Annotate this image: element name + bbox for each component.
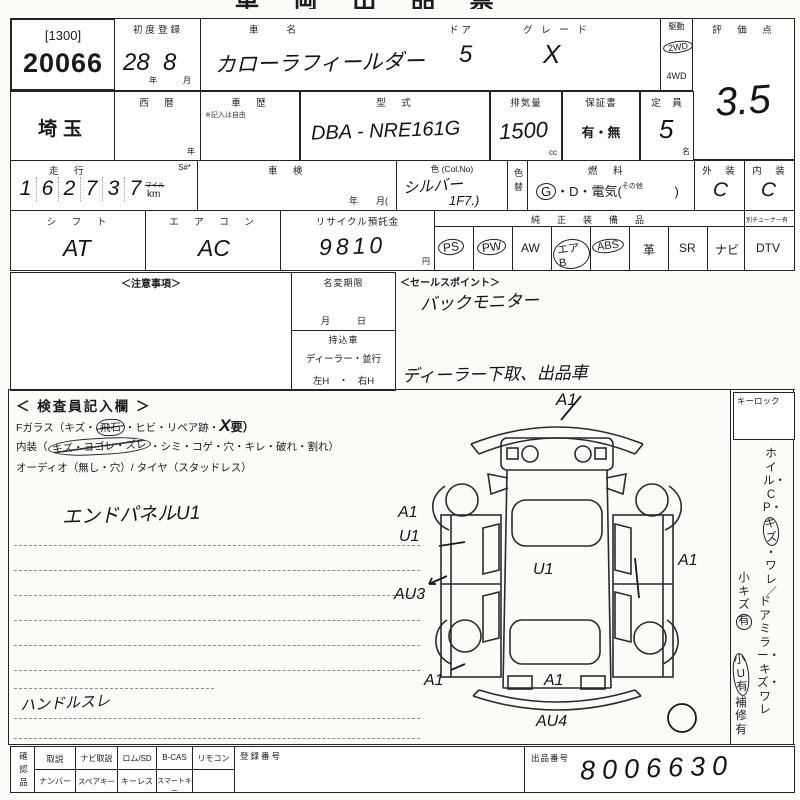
cell-smart-key: スマートキー: [156, 769, 193, 793]
wheel-small-scratch: 小キズ: [738, 572, 750, 611]
fglass-post: 要）: [231, 420, 255, 434]
warranty-options: 有・無: [563, 122, 639, 141]
car-name-value: カローラフィールダー: [215, 45, 425, 79]
right-border: [793, 389, 794, 745]
mirror-kou-circled: 小U有: [731, 652, 751, 696]
bring-in-cell: 持込車 ディーラー・並行 左H ・ 右H: [291, 330, 396, 391]
bcas-label: B-CAS: [157, 753, 192, 762]
cell-number-plate: ナンバー: [34, 769, 76, 793]
displacement-value: 1500: [498, 117, 548, 146]
bring-in-handle: 左H ・ 右H: [292, 373, 395, 387]
confirm-items-cell: 確認品: [10, 746, 35, 793]
seireki-unit: 年: [187, 146, 195, 157]
displacement-label: 排気量: [491, 95, 561, 109]
equip-cell-dtv: DTV: [744, 226, 795, 271]
mirror-repair-note: 補修有: [735, 697, 747, 736]
drive-type-cell: 駆動 2WD 4WD: [660, 18, 693, 91]
shareki-label: 車 歴: [201, 95, 299, 109]
fuel-close-paren: ): [674, 184, 678, 199]
cell-rom-sd: ロム/SD: [117, 746, 157, 770]
cell-navi-manual: ナビ取説: [75, 746, 118, 770]
inspection-cell: 車 検 年 月(: [197, 160, 397, 211]
tuner-note-cell: 別チューナー有: [744, 210, 795, 227]
year-unit: 年: [149, 75, 157, 86]
inspector-header: ＜ 検査員記入欄 ＞: [16, 395, 152, 415]
auction-sheet: { "title": {"clipped": "車 両 出 品 票"}, "lo…: [0, 0, 800, 800]
cell-blank: [192, 769, 235, 793]
wheel-small-scratch-column: 小キズ有: [736, 572, 752, 630]
equip-abs: ABS: [591, 237, 624, 255]
interior-value: C: [759, 178, 777, 203]
capacity-value: 5: [659, 114, 673, 145]
exterior-grade-cell: 外 装 C: [694, 160, 745, 211]
door-label: ドア: [449, 22, 474, 36]
shareki-note: ※記入は自由: [205, 110, 246, 120]
exterior-label: 外 装: [695, 163, 744, 177]
bring-in-label: 持込車: [292, 333, 395, 346]
mileage-unit-mile: マイル: [145, 179, 165, 189]
drive-label: 駆動: [661, 21, 692, 32]
mileage-label: 走 行: [49, 163, 87, 177]
ruled-line: [14, 570, 420, 571]
drive-4wd: 4WD: [661, 71, 692, 81]
equip-sr: SR: [679, 241, 696, 255]
interior-scribbled-items: キズ・ヨゴレ・ズレ: [47, 435, 150, 457]
wheel-kizu-circled: キズ: [762, 516, 781, 547]
equipment-header-label: 純 正 装 備 品: [435, 213, 744, 226]
equip-aw: AW: [521, 241, 540, 255]
drive-2wd-circle: 2WD: [662, 39, 693, 55]
interior-grade-cell: 内 装 C: [744, 160, 795, 211]
color-code: 1F7.): [449, 193, 479, 208]
ruled-line: [14, 645, 420, 646]
cell-keyless: キーレス: [117, 769, 157, 793]
interior-label: 内 装: [745, 163, 794, 177]
capacity-unit: 名: [682, 146, 690, 157]
notes-box: ＜注意事項＞: [10, 272, 292, 391]
inspection-unit: 年 月(: [349, 194, 388, 207]
aircon-value: AC: [198, 235, 230, 262]
door-value: 5: [459, 41, 472, 69]
keylock-label: キーロック: [737, 395, 780, 407]
fglass-line: Fガラス（キズ・飛石・ヒビ・リペア跡・X要）: [16, 416, 255, 436]
number-plate-label: ナンバー: [35, 776, 75, 787]
ruled-line: [14, 620, 420, 621]
damage-mark: AU3: [394, 586, 425, 604]
ruled-line: [14, 718, 420, 719]
shareki-cell: 車 歴 ※記入は自由: [200, 91, 300, 161]
interior-line: 内装（キズ・ヨゴレ・ズレ・シミ・コゲ・穴・キレ・破れ・割れ）: [16, 438, 339, 455]
navi-manual-label: ナビ取説: [76, 753, 117, 764]
wheel-note-post: ・ワレ／: [765, 547, 777, 600]
smart-key-label: スマートキー: [157, 776, 192, 796]
cell-spare-key: スペアキー: [75, 769, 118, 793]
equip-cell-navi: ナビ: [707, 226, 745, 271]
mileage-unit-km: km: [147, 189, 160, 200]
fuel-cell: 燃 料 G・D・電気(その他 ): [527, 160, 695, 211]
wheel-ari-circled: 有: [735, 613, 753, 630]
equip-cell-ps: PS: [434, 226, 474, 271]
mileage-digits: 1 6 2 7 3 7: [15, 177, 146, 201]
equip-ps: PS: [437, 237, 465, 256]
equip-dtv: DTV: [756, 241, 780, 255]
ruled-line: [14, 545, 420, 546]
model-code-cell: 型 式 DBA - NRE161G: [300, 91, 490, 161]
color-change-label: 色替: [512, 167, 525, 194]
lot-number-bottom-label: 出品番号: [531, 752, 569, 764]
inspector-note-endpanel: エンドパネルU1: [62, 498, 201, 530]
equip-cell-leather: 革: [629, 226, 669, 271]
shift-cell: シ フ ト AT: [10, 210, 146, 271]
color-cell: 色 (Col.No) シルバー 1F7.): [396, 160, 508, 211]
displacement-unit: cc: [549, 148, 557, 157]
fuel-rest: ・D・電気(: [556, 184, 622, 199]
mileage-digit: 7: [80, 177, 102, 201]
warranty-label: 保証書: [563, 95, 639, 109]
score-value: 3.5: [713, 77, 772, 126]
manual-label: 取説: [35, 753, 75, 765]
fglass-mid: ・ヒビ・リペア跡・: [125, 422, 220, 434]
remote-label: リモコン: [193, 753, 234, 764]
recycle-unit: 円: [422, 256, 430, 267]
damage-mark: A1: [398, 504, 418, 522]
ruled-line: [14, 595, 420, 596]
equip-navi: ナビ: [715, 241, 739, 258]
damage-mark: A1: [556, 390, 577, 410]
exterior-value: C: [711, 178, 729, 203]
name-change-fields: 月 日: [292, 314, 395, 327]
mileage-digit: 2: [58, 177, 80, 201]
spare-key-label: スペアキー: [76, 776, 117, 787]
name-change-cell: 名変期限 月 日: [291, 272, 396, 331]
equip-cell-pw: PW: [473, 226, 513, 271]
mileage-digit: 3: [102, 177, 124, 201]
first-registration-year: 28: [123, 49, 150, 77]
damage-mark: A1: [544, 672, 564, 690]
keyless-label: キーレス: [118, 776, 156, 787]
clipped-sheet-title: 車 両 出 品 票: [235, 0, 585, 9]
recycle-deposit-cell: リサイクル預託金 9810 円: [280, 210, 435, 271]
model-code-label: 型 式: [301, 95, 489, 109]
model-code-value: DBA - NRE161G: [311, 117, 461, 145]
bring-in-dealer: ディーラー・並行: [292, 351, 395, 365]
lot-class-code: [1300]: [12, 28, 114, 43]
equip-cell-sr: SR: [668, 226, 708, 271]
capacity-cell: 定 員 5 名: [640, 91, 694, 161]
equip-leather: 革: [643, 241, 655, 258]
audio-tire-line: オーディオ（無し・穴）/ タイヤ（スタッドレス）: [16, 460, 252, 475]
fuel-gasoline-circle: G: [535, 182, 557, 201]
sales-note-handwritten: ディーラー下取、出品車: [402, 358, 588, 386]
sales-point-header: ＜セールスポイント＞: [400, 274, 500, 289]
recycle-label: リサイクル預託金: [281, 214, 434, 228]
damage-circle-mark: [668, 704, 696, 732]
mirror-note: ドアミラー・キズ・ワレ: [757, 596, 780, 716]
score-label: 評 価 点: [693, 22, 794, 36]
prefecture-cell: 埼玉: [10, 91, 116, 161]
ruled-line: [14, 688, 214, 689]
fglass-x-mark: X: [219, 416, 230, 435]
prefecture-value: 埼玉: [11, 114, 115, 141]
damage-mark: U1: [533, 561, 553, 579]
registration-number-box: 登録番号: [234, 746, 525, 793]
equip-pw: PW: [476, 237, 507, 256]
lot-number-box: [1300] 20066: [10, 18, 116, 91]
ruled-line: [14, 670, 420, 671]
color-change-cell: 色替: [507, 160, 528, 211]
mileage-s-label: S#*: [178, 163, 191, 172]
lot-number-bottom-value: 8006630: [580, 750, 735, 786]
aircon-label: エ ア コ ン: [146, 214, 280, 228]
cell-remote: リモコン: [192, 746, 235, 770]
left-border: [8, 389, 9, 745]
rom-sd-label: ロム/SD: [118, 753, 156, 764]
registration-number-label: 登録番号: [240, 750, 282, 762]
inspector-note-handle: ハンドルスレ: [20, 690, 111, 716]
equip-cell-aw: AW: [512, 226, 552, 271]
fuel-label: 燃 料: [588, 163, 626, 177]
mileage-digit: 7: [124, 177, 146, 201]
first-registration-cell: 初度登録 28 年 8 月: [114, 18, 202, 91]
grade-value: X: [543, 39, 560, 70]
first-registration-month: 8: [163, 49, 176, 77]
interior-pre: 内装（: [16, 441, 48, 453]
seireki-cell: 西 暦 年: [114, 91, 202, 161]
warranty-cell: 保証書 有・無: [562, 91, 640, 161]
month-unit: 月: [183, 75, 191, 86]
sales-point-value: バックモニター: [420, 286, 540, 315]
mirror-note-column: ドアミラー・キズ・ワレ: [757, 596, 773, 718]
inspection-label: 車 検: [268, 163, 306, 177]
interior-post: ・シミ・コゲ・穴・キレ・破れ・割れ）: [150, 441, 339, 453]
capacity-label: 定 員: [641, 95, 693, 109]
fuel-options: G・D・電気(その他 ): [536, 181, 679, 200]
name-change-label: 名変期限: [292, 276, 395, 289]
recycle-value: 9810: [319, 232, 387, 261]
displacement-cell: 排気量 1500 cc: [490, 91, 562, 161]
mileage-digit: 6: [36, 177, 58, 201]
car-name-cell: 車 名 ドア グ レ ー ド カローラフィールダー 5 X: [200, 18, 662, 91]
notes-header: ＜注意事項＞: [11, 275, 291, 290]
first-registration-label: 初度登録: [115, 22, 201, 36]
fuel-other-label: その他: [622, 183, 643, 190]
grade-label: グ レ ー ド: [523, 22, 590, 36]
equip-airbag: エアB: [551, 237, 591, 271]
wheel-note-column: ホイル・CP・キズ・ワレ／: [763, 448, 779, 601]
shift-label: シ フ ト: [11, 214, 145, 228]
damage-mark: A1: [424, 672, 444, 690]
cell-manual: 取説: [34, 746, 76, 770]
aircon-cell: エ ア コ ン AC: [145, 210, 281, 271]
lot-number: 20066: [12, 48, 114, 79]
seireki-label: 西 暦: [115, 95, 201, 109]
drive-2wd: 2WD: [662, 41, 693, 53]
mileage-cell: 走 行 S#* 1 6 2 7 3 7 マイル km: [10, 160, 198, 211]
mileage-digit: 1: [15, 177, 36, 201]
tuner-note: 別チューナー有: [746, 215, 788, 224]
ruled-line: [14, 738, 420, 739]
score-cell: 評 価 点 3.5: [692, 18, 795, 160]
fglass-pre: Fガラス（キズ・: [16, 422, 96, 434]
damage-mark: AU4: [536, 713, 567, 731]
cell-bcas: B-CAS: [156, 746, 193, 770]
equip-cell-airbag: エアB: [551, 226, 591, 271]
shift-value: AT: [63, 235, 91, 262]
confirm-items-label: 確認品: [17, 750, 30, 789]
keylock-box: キーロック: [733, 392, 795, 440]
fglass-circled-item: 飛石: [95, 418, 125, 436]
equip-cell-abs: ABS: [590, 226, 630, 271]
lot-number-bottom-box: 出品番号 8006630: [524, 746, 795, 793]
car-name-label: 車 名: [249, 22, 299, 36]
damage-mark: A1: [678, 552, 698, 570]
equipment-header: 純 正 装 備 品: [434, 210, 745, 227]
wheel-note-pre: ホイル・CP・: [763, 448, 786, 514]
mirror-note2-column: 小U有補修有: [733, 652, 749, 737]
damage-mark: U1: [399, 528, 419, 546]
